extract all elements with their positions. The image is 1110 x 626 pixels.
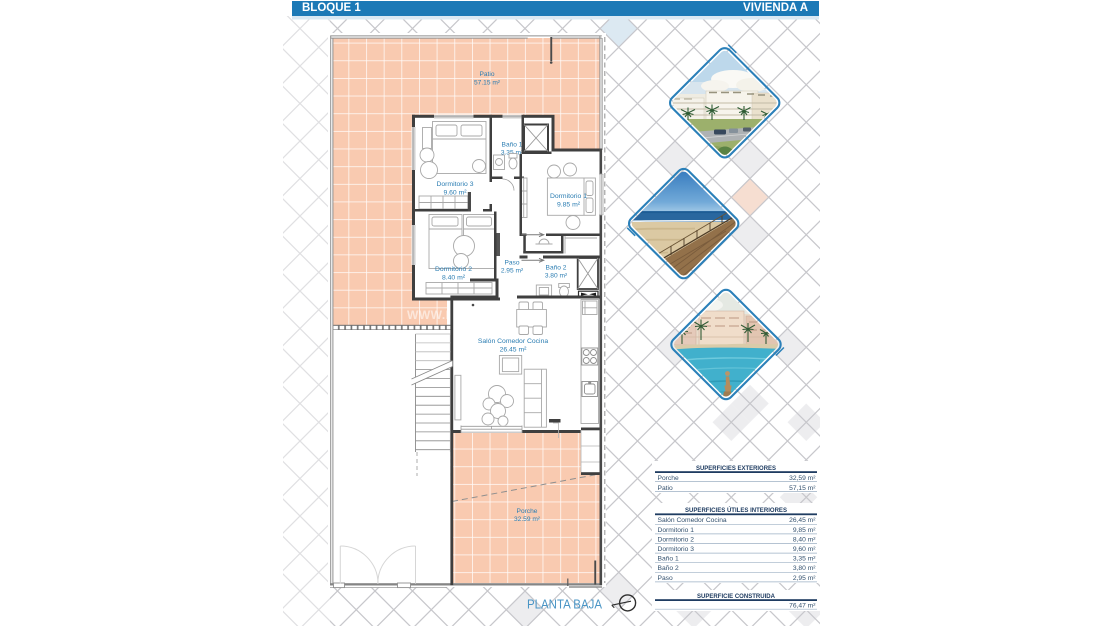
svg-text:32,59 m²: 32,59 m² [789,475,816,482]
svg-text:Baño 2: Baño 2 [546,265,567,272]
svg-text:32.59 m²: 32.59 m² [514,516,541,523]
svg-text:Dormitorio 2: Dormitorio 2 [658,536,695,543]
svg-text:3,80 m²: 3,80 m² [793,565,816,572]
svg-text:Dormitorio 2: Dormitorio 2 [435,266,472,273]
svg-text:Paso: Paso [658,575,674,582]
svg-text:Porche: Porche [658,475,679,482]
svg-text:Dormitorio 1: Dormitorio 1 [658,527,695,534]
svg-text:57.15 m²: 57.15 m² [474,80,501,87]
svg-text:Patio: Patio [658,485,674,492]
svg-text:Patio: Patio [479,71,494,78]
svg-text:SUPERFICIES ÚTILES INTERIORES: SUPERFICIES ÚTILES INTERIORES [685,505,788,514]
svg-text:Baño 2: Baño 2 [658,565,679,572]
svg-text:76,47 m²: 76,47 m² [789,603,816,610]
svg-text:9,60 m²: 9,60 m² [793,546,816,553]
svg-text:57,15 m²: 57,15 m² [789,485,816,492]
svg-text:SUPERFICIES EXTERIORES: SUPERFICIES EXTERIORES [696,465,777,472]
svg-text:Dormitorio 3: Dormitorio 3 [658,546,695,553]
svg-text:Porche: Porche [517,508,538,515]
svg-text:8,40 m²: 8,40 m² [793,536,816,543]
svg-text:3.80 m²: 3.80 m² [545,273,568,280]
svg-text:26.45 m²: 26.45 m² [500,347,528,354]
svg-text:9,85 m²: 9,85 m² [793,527,816,534]
svg-text:8.40 m²: 8.40 m² [442,275,466,282]
svg-text:Salón Comedor Cocina: Salón Comedor Cocina [478,338,548,345]
svg-text:2,95 m²: 2,95 m² [793,575,816,582]
svg-text:9.60 m²: 9.60 m² [443,190,467,197]
svg-text:9.85 m²: 9.85 m² [557,202,581,209]
svg-text:3,35 m²: 3,35 m² [793,556,816,563]
svg-text:Dormitorio 1: Dormitorio 1 [550,193,587,200]
svg-text:Dormitorio 3: Dormitorio 3 [436,181,473,188]
svg-text:Baño 1: Baño 1 [658,556,679,563]
svg-text:Paso: Paso [504,260,519,267]
svg-text:2.95 m²: 2.95 m² [501,268,524,275]
svg-text:Salón Comedor Cocina: Salón Comedor Cocina [658,517,727,524]
svg-text:26,45 m²: 26,45 m² [789,517,816,524]
svg-text:Baño 1: Baño 1 [502,142,523,149]
svg-text:SUPERFICIE CONSTRUIDA: SUPERFICIE CONSTRUIDA [697,593,775,600]
svg-text:PLANTA BAJA: PLANTA BAJA [527,597,602,612]
